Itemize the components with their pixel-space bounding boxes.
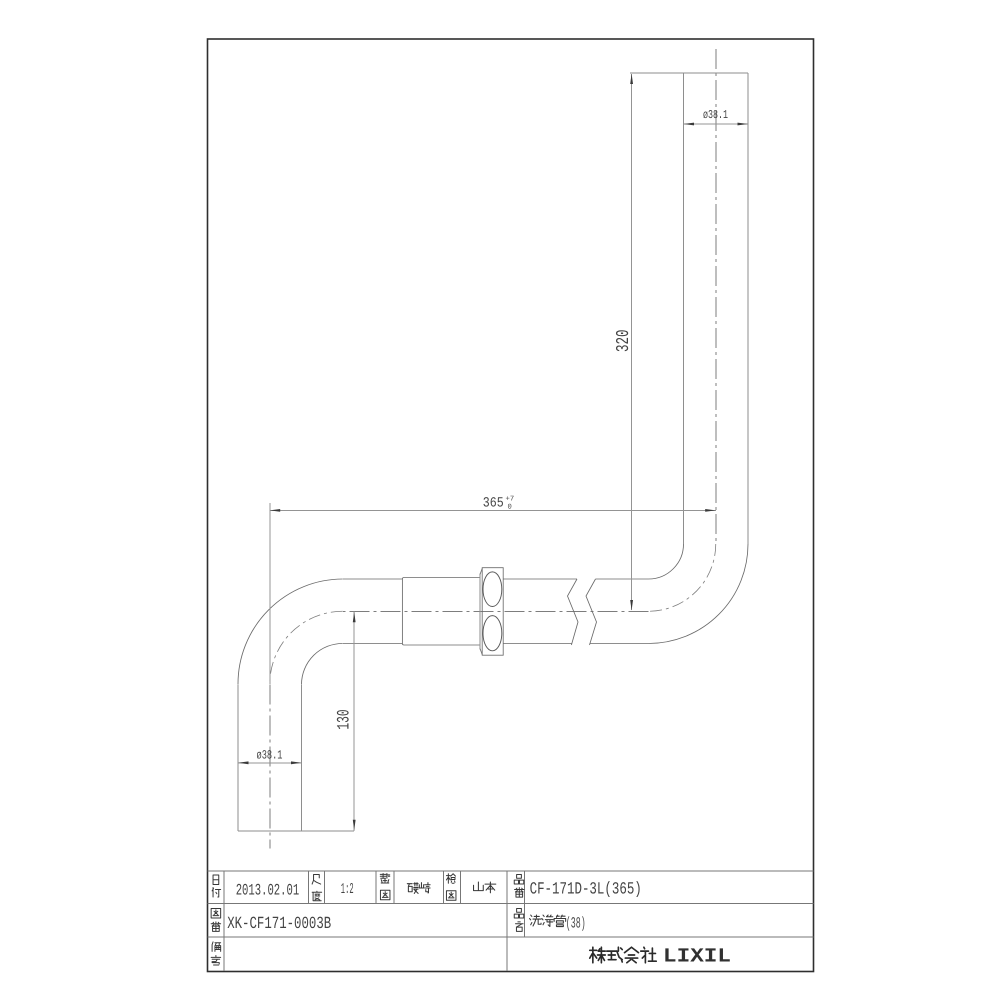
- svg-text:320: 320: [614, 329, 634, 352]
- svg-text:0: 0: [508, 504, 512, 512]
- svg-text:2013.02.01: 2013.02.01: [236, 882, 299, 900]
- svg-text:1:2: 1:2: [341, 881, 354, 898]
- svg-text:ø38.1: ø38.1: [257, 749, 283, 763]
- svg-text:130: 130: [334, 709, 354, 729]
- svg-text:(38): (38): [566, 915, 586, 933]
- svg-text:ø38.1: ø38.1: [703, 108, 728, 122]
- svg-text:CF-171D-3L(365): CF-171D-3L(365): [530, 881, 642, 900]
- svg-text:LIXIL: LIXIL: [663, 946, 731, 969]
- svg-text:+7: +7: [506, 496, 515, 504]
- svg-text:365: 365: [483, 495, 504, 511]
- svg-text:XK-CF171-0003B: XK-CF171-0003B: [227, 915, 331, 934]
